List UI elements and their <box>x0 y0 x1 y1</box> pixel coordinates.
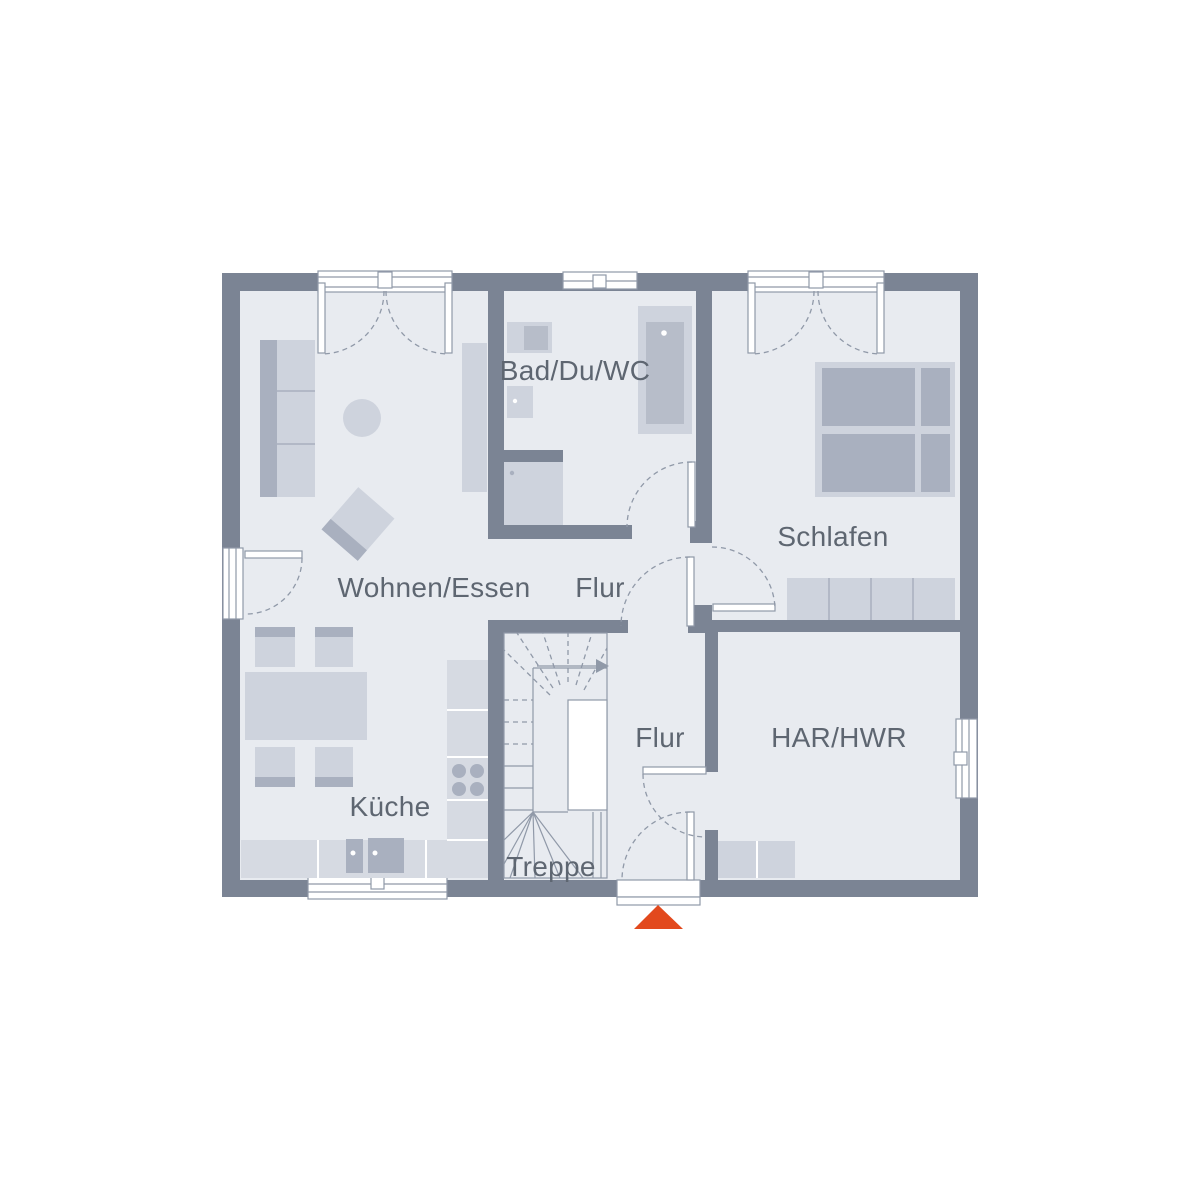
utility-label: HAR/HWR <box>771 722 907 753</box>
dishwasher <box>368 838 404 873</box>
living-label: Wohnen/Essen <box>338 572 531 603</box>
utility-window <box>954 719 977 798</box>
upper-hall-label: Flur <box>575 572 624 603</box>
utility-appliances <box>718 841 795 878</box>
bath-window <box>563 272 637 289</box>
entrance-marker-icon <box>634 905 683 929</box>
floor-plan-page: Wohnen/Essen Flur Bad/Du/WC Schlafen Küc… <box>0 0 1200 1200</box>
staircase <box>504 633 609 878</box>
sideboard <box>462 343 487 492</box>
coffee-table <box>343 399 381 437</box>
floor-plan: Wohnen/Essen Flur Bad/Du/WC Schlafen Küc… <box>0 0 1200 1200</box>
kitchen-window <box>308 877 447 899</box>
kitchen-label: Küche <box>350 791 431 822</box>
bath-label: Bad/Du/WC <box>500 355 651 386</box>
sink-unit <box>346 839 363 873</box>
lower-hall-label: Flur <box>635 722 684 753</box>
double-bed <box>815 362 955 497</box>
stairs-label: Treppe <box>506 851 595 882</box>
toilet <box>507 386 533 418</box>
sofa <box>260 340 315 497</box>
wardrobe <box>787 578 955 620</box>
washbasin <box>507 322 552 353</box>
bedroom-label: Schlafen <box>777 521 888 552</box>
shower <box>504 462 563 525</box>
